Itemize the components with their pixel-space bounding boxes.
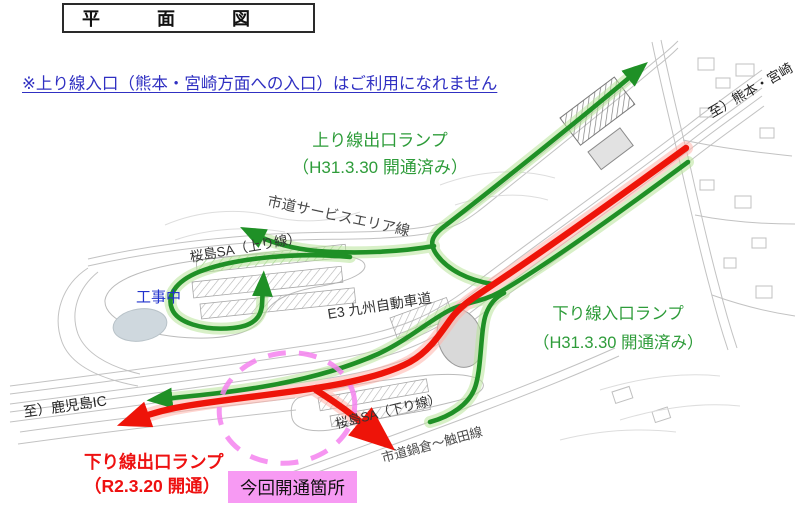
up-exit-ramp-date: （H31.3.30 開通済み） xyxy=(276,154,484,181)
down-entrance-ramp-date: （H31.3.30 開通済み） xyxy=(533,329,703,358)
up-exit-ramp-label: 上り線出口ランプ （H31.3.30 開通済み） xyxy=(276,127,484,181)
down-entrance-ramp-name: 下り線入口ランプ xyxy=(533,300,703,329)
drawing-title: 平 面 図 xyxy=(82,5,276,31)
up-entrance-unavailable-notice: ※上り線入口（熊本・宮崎方面への入口）はご利用になれません xyxy=(22,70,497,94)
drawing-title-box: 平 面 図 xyxy=(62,3,315,33)
up-exit-ramp-name: 上り線出口ランプ xyxy=(276,127,484,154)
plan-view-page: 平 面 図 ※上り線入口（熊本・宮崎方面への入口）はご利用になれません 上り線出… xyxy=(0,0,800,522)
construction-pond xyxy=(111,305,169,344)
down-exit-ramp-label: 下り線出口ランプ （R2.3.20 開通） xyxy=(84,450,223,498)
new-section-badge: 今回開通箇所 xyxy=(228,471,357,503)
down-exit-ramp-date: （R2.3.20 開通） xyxy=(84,474,223,498)
down-exit-ramp-name: 下り線出口ランプ xyxy=(84,450,223,474)
down-entrance-ramp-label: 下り線入口ランプ （H31.3.30 開通済み） xyxy=(533,300,703,358)
construction-label: 工事中 xyxy=(136,286,181,307)
